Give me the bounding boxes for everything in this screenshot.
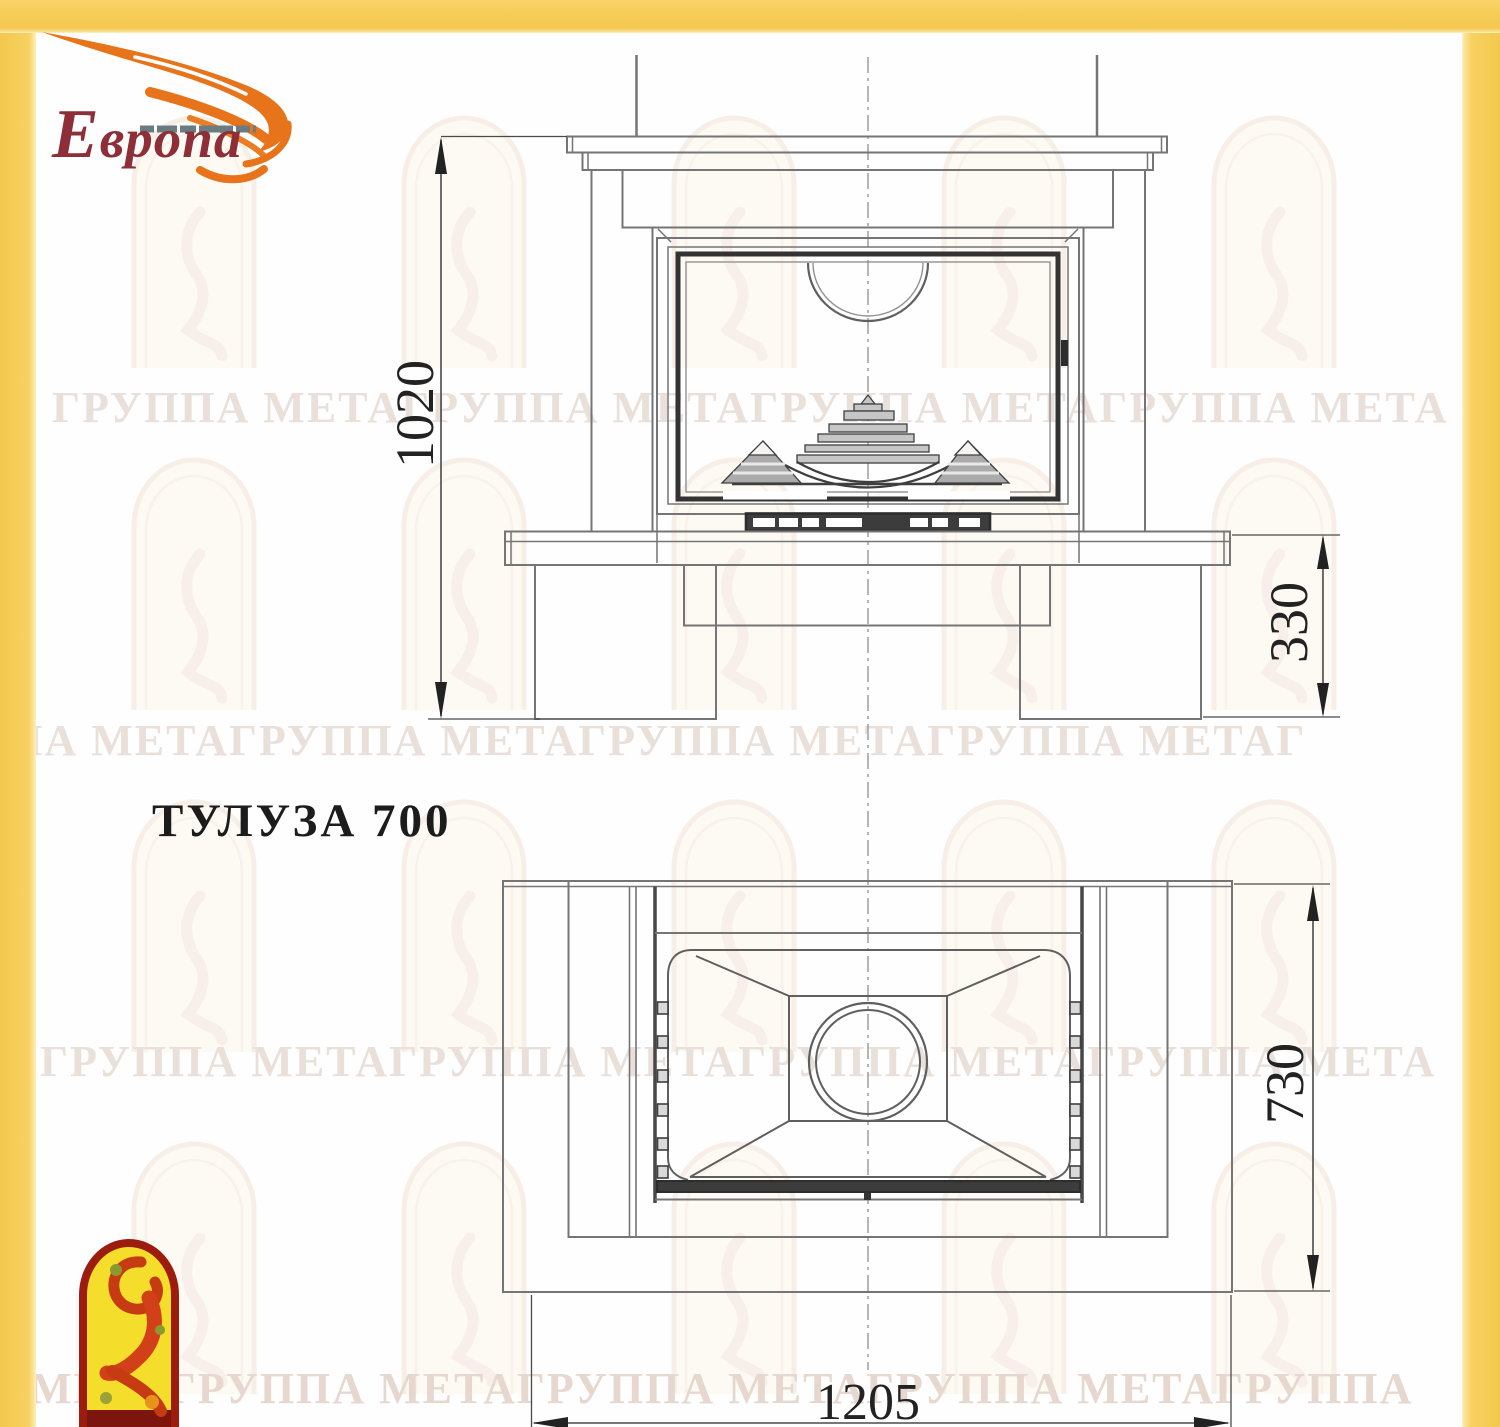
svg-text:1205: 1205: [816, 1374, 920, 1427]
svg-text:Европа: Европа: [51, 96, 242, 173]
svg-text:330: 330: [1259, 582, 1319, 663]
svg-text:ГРУППА МЕТАГРУППА МЕТАГРУППА М: ГРУППА МЕТАГРУППА МЕТАГРУППА МЕТАГРУППА …: [40, 1037, 1436, 1086]
svg-text:ГРУППА МЕТАГРУППА МЕТАГРУППА М: ГРУППА МЕТАГРУППА МЕТАГРУППА МЕТАГРУППА …: [52, 383, 1448, 432]
svg-text:ППА МЕТАГРУППА МЕТАГРУППА МЕТА: ППА МЕТАГРУППА МЕТАГРУППА МЕТАГРУППА МЕТ…: [0, 716, 1306, 765]
svg-text:730: 730: [1255, 1043, 1315, 1124]
svg-text:МЕТАГРУППА МЕТАГРУППА МЕТАГРУП: МЕТАГРУППА МЕТАГРУППА МЕТАГРУППА МЕТАГРУ…: [30, 1364, 1413, 1413]
svg-text:1020: 1020: [385, 360, 445, 468]
svg-text:ТУЛУЗА 700: ТУЛУЗА 700: [152, 795, 452, 847]
